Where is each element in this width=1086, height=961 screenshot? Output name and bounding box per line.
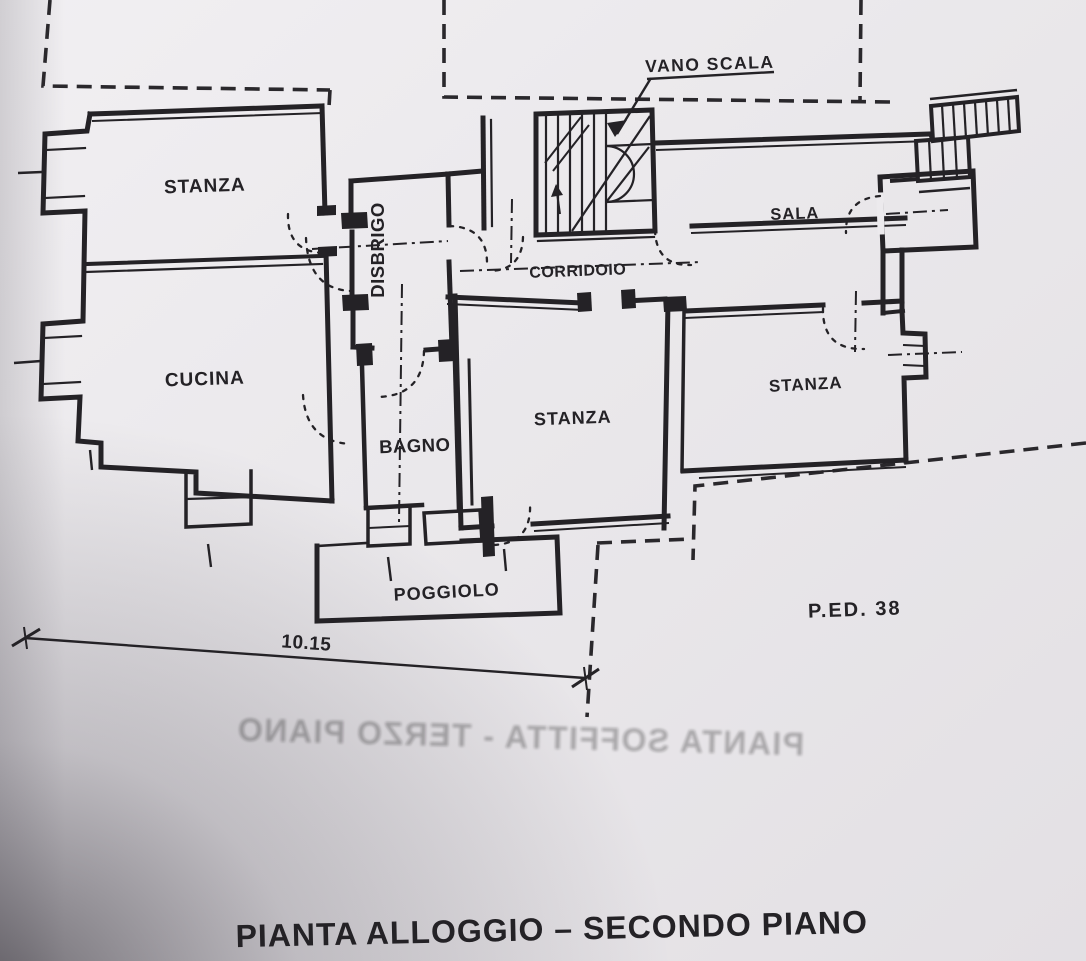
jamb-bagno-left	[356, 343, 373, 366]
room-label-corridoio: CORRIDOIO	[529, 261, 626, 281]
corner-shadow	[0, 0, 1086, 961]
boundary-left-drop	[329, 90, 330, 107]
dimension-label: 10.15	[281, 631, 332, 655]
jamb-corridor-right	[621, 289, 636, 309]
window-right-inner-b	[904, 365, 924, 366]
wall-stanza-right-left	[682, 312, 684, 471]
paper-background	[0, 0, 1086, 961]
room-label-stanza-right: STANZA	[768, 373, 843, 396]
ext-stair-link-wall	[890, 179, 918, 181]
wall-shaft-link	[448, 171, 483, 174]
axis-stair-door	[511, 199, 512, 263]
wall-disbrigo-right	[448, 174, 449, 225]
wall-stub-poggiolo	[481, 496, 495, 557]
room-label-bagno: BAGNO	[379, 434, 451, 457]
room-label-cucina: CUCINA	[165, 368, 246, 392]
scanned-floor-plan-page: PIANTA SOFFITTA - TERZO PIANO	[0, 0, 1086, 961]
jamb-disbrigo-upper	[341, 212, 368, 229]
room-label-stanza-top-left: STANZA	[164, 175, 246, 199]
ext-stair-corner	[930, 134, 933, 141]
jamb-disbrigo-lower	[342, 294, 369, 311]
window-right-inner-a	[904, 345, 924, 346]
room-label-sala: SALA	[770, 204, 820, 224]
jamb-corridor-left	[577, 292, 592, 312]
jamb-bagno-right	[438, 339, 455, 362]
wall-stanza-right-upper	[322, 106, 325, 213]
room-label-disbrigo: DISBRIGO	[367, 202, 388, 297]
room-label-stanza-center: STANZA	[534, 407, 612, 430]
parcel-label: P.ED. 38	[808, 597, 902, 622]
jamb-stanza-door-a	[317, 205, 336, 216]
tick-window-left1	[18, 172, 42, 173]
floor-plan-drawing: PIANTA SOFFITTA - TERZO PIANO	[0, 0, 1086, 961]
landing-door-gap	[880, 196, 881, 231]
wall-shaft-west-inner	[491, 120, 492, 226]
wall-jog-block	[663, 296, 687, 312]
wall-bagno-bottom	[366, 505, 422, 508]
